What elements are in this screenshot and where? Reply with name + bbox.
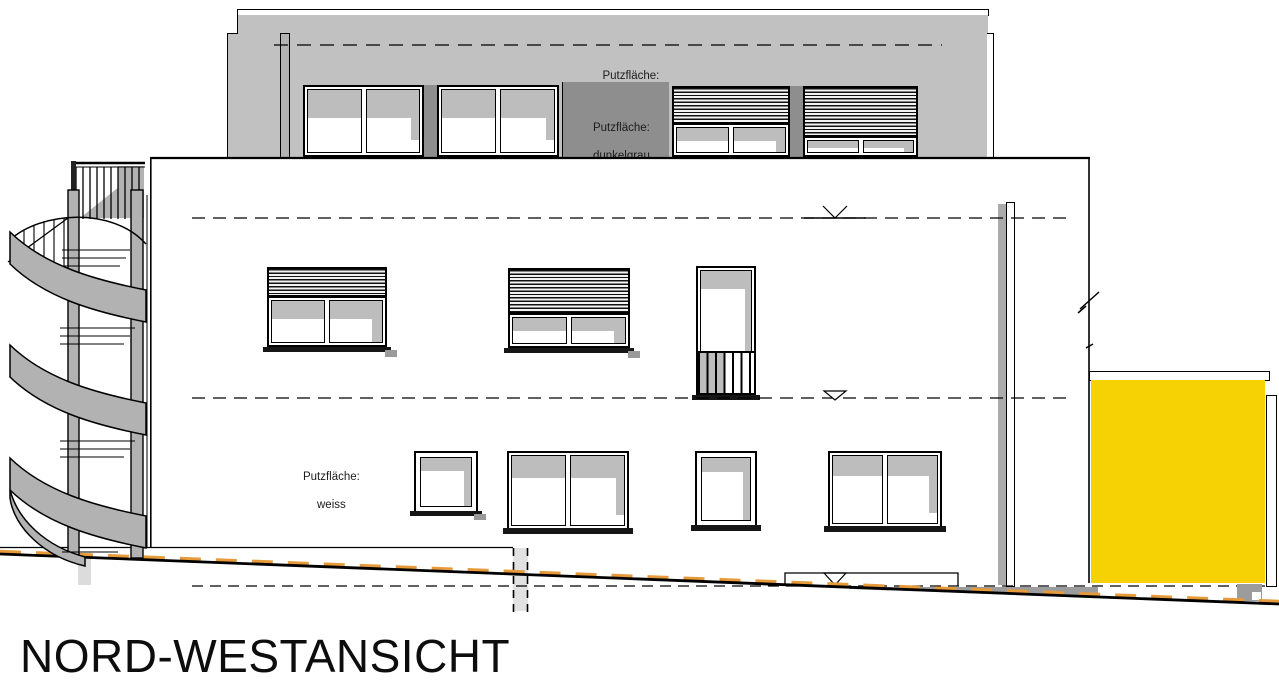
linework-overlay xyxy=(0,0,1279,682)
drawing-title: NORD-WESTANSICHT xyxy=(20,629,510,682)
terrain-dashed-overlay xyxy=(0,552,1279,602)
level-marker-open xyxy=(804,206,866,218)
stair-post xyxy=(131,190,143,558)
ground-block-gap xyxy=(1252,592,1261,600)
stair-helix-bands xyxy=(10,232,146,566)
level-markers xyxy=(804,206,866,585)
datum-lines xyxy=(192,45,1270,586)
terrain-line xyxy=(0,554,1279,604)
section-cut-lines xyxy=(514,548,528,612)
spiral-staircase xyxy=(8,161,147,566)
facade-outline xyxy=(150,158,1090,583)
elevation-drawing: Putzfläche: hellgrau Putzfläche: dunkelg… xyxy=(0,0,1279,682)
